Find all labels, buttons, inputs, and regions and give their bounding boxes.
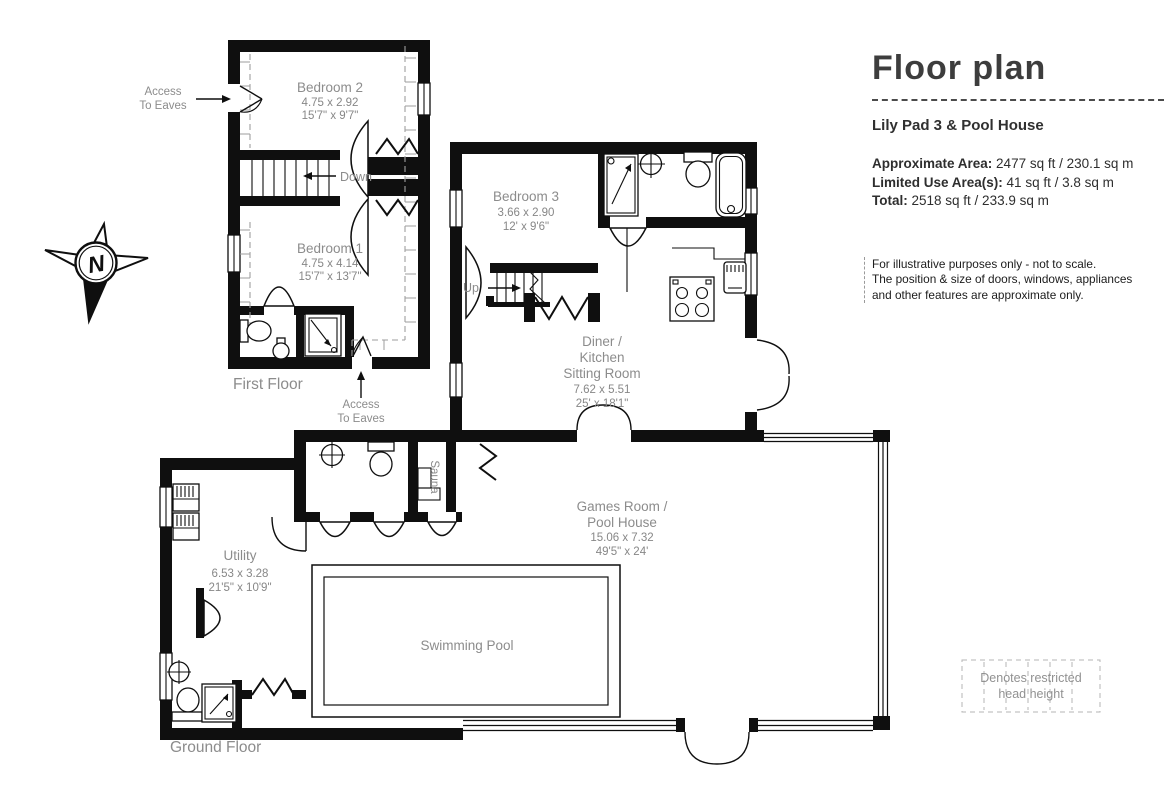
first-floor-plan: Down Access To Eaves Access To Eaves Bed…: [139, 40, 430, 425]
bedroom-1-label: Bedroom 1 4.75 x 4.14 15'7" x 13'7": [297, 241, 363, 283]
svg-text:4.75 x 2.92: 4.75 x 2.92: [302, 97, 359, 109]
total-area-row: Total: 2518 sq ft / 233.9 sq m: [872, 192, 1164, 211]
bathroom-fixtures: [604, 151, 746, 217]
approximate-area-value: 2477 sq ft / 230.1 sq m: [996, 156, 1133, 171]
first-floor-stairs: [252, 160, 329, 196]
svg-text:4.75 x 4.14: 4.75 x 4.14: [302, 258, 360, 270]
page-title: Floor plan: [872, 50, 1164, 86]
limited-use-area-value: 41 sq ft / 3.8 sq m: [1007, 175, 1114, 190]
shower-room-fixtures: [167, 660, 236, 722]
bedroom-2-label: Bedroom 2 4.75 x 2.92 15'7" x 9'7": [297, 80, 363, 122]
sink-icon: [319, 442, 345, 468]
swimming-pool-label: Swimming Pool: [420, 638, 513, 653]
svg-text:Games Room /: Games Room /: [577, 499, 668, 514]
svg-text:15'7" x 13'7": 15'7" x 13'7": [298, 271, 361, 283]
svg-text:Kitchen: Kitchen: [579, 350, 624, 365]
svg-text:15.06 x 7.32: 15.06 x 7.32: [590, 532, 653, 544]
svg-text:Bedroom 1: Bedroom 1: [297, 241, 363, 256]
limited-use-area-label: Limited Use Area(s):: [872, 175, 1003, 190]
utility-appliances: [173, 484, 199, 540]
bathtub-icon: [716, 153, 746, 217]
svg-text:To Eaves: To Eaves: [337, 413, 385, 425]
disclaimer-line-3: and other features are approximate only.: [872, 288, 1164, 304]
area-summary: Approximate Area: 2477 sq ft / 230.1 sq …: [872, 155, 1164, 211]
svg-text:Diner /: Diner /: [582, 334, 622, 349]
svg-text:Sitting Room: Sitting Room: [563, 366, 640, 381]
svg-text:12' x 9'6": 12' x 9'6": [503, 221, 549, 233]
utility-label: Utility 6.53 x 3.28 21'5" x 10'9": [208, 548, 271, 594]
dryer-icon: [173, 513, 199, 540]
property-name: Lily Pad 3 & Pool House: [872, 117, 1164, 134]
floor-plan-page: N: [0, 0, 1165, 787]
hob-icon: [670, 277, 714, 321]
disclaimer-line-1: For illustrative purposes only - not to …: [872, 257, 1164, 273]
access-to-eaves-left: Access To Eaves: [139, 86, 231, 112]
disclaimer-line-2: The position & size of doors, windows, a…: [872, 272, 1164, 288]
kitchen-fixtures: [627, 228, 746, 321]
fridge-icon: [724, 262, 746, 293]
sink-icon: [273, 338, 289, 359]
ground-floor-label: Ground Floor: [170, 739, 261, 756]
svg-text:49'5" x 24': 49'5" x 24': [596, 546, 649, 558]
dashed-divider: [872, 99, 1164, 101]
washer-icon: [173, 484, 199, 511]
info-panel: Floor plan Lily Pad 3 & Pool House Appro…: [872, 50, 1164, 303]
bedroom-3-label: Bedroom 3 3.66 x 2.90 12' x 9'6": [493, 189, 559, 233]
disclaimer: For illustrative purposes only - not to …: [864, 257, 1164, 304]
svg-text:Utility: Utility: [224, 548, 257, 563]
diner-kitchen-label: Diner / Kitchen Sitting Room 7.62 x 5.51…: [563, 334, 640, 410]
wc-fixtures: [319, 442, 394, 476]
down-label: Down: [340, 170, 372, 184]
limited-use-area-row: Limited Use Area(s): 41 sq ft / 3.8 sq m: [872, 174, 1164, 193]
legend-line-1: Denotes restricted: [980, 671, 1081, 685]
total-area-label: Total:: [872, 193, 908, 208]
ensuite-fixtures: [240, 314, 341, 359]
svg-text:Bedroom 3: Bedroom 3: [493, 189, 559, 204]
toilet-icon: [240, 320, 271, 342]
toilet-icon: [172, 688, 202, 721]
up-label: Up: [463, 281, 479, 295]
toilet-icon: [684, 152, 712, 187]
toilet-icon: [368, 442, 394, 476]
svg-text:21'5" x 10'9": 21'5" x 10'9": [208, 582, 271, 594]
down-annotation: Down: [303, 170, 372, 184]
games-room-label: Games Room / Pool House 15.06 x 7.32 49'…: [577, 499, 668, 558]
svg-text:3.66 x 2.90: 3.66 x 2.90: [498, 207, 555, 219]
access-to-eaves-bottom: Access To Eaves: [337, 371, 385, 425]
shower-icon: [305, 314, 341, 356]
sauna-label: Sauna: [428, 460, 440, 494]
svg-text:Pool House: Pool House: [587, 515, 657, 530]
legend-line-2: head height: [998, 687, 1064, 701]
total-area-value: 2518 sq ft / 233.9 sq m: [912, 193, 1049, 208]
shower-icon: [202, 684, 236, 722]
svg-text:25' x 18'1": 25' x 18'1": [576, 398, 629, 410]
svg-text:Bedroom 2: Bedroom 2: [297, 80, 363, 95]
svg-text:15'7" x 9'7": 15'7" x 9'7": [302, 110, 359, 122]
sink-icon: [638, 151, 665, 178]
ground-floor-plan: Swimming Pool Up Bedroom 3 3.66 x 2.90 1…: [160, 142, 890, 764]
svg-text:Access: Access: [342, 399, 379, 411]
restricted-head-height-legend: Denotes restricted head height: [962, 660, 1100, 712]
up-annotation: Up: [463, 281, 521, 295]
swimming-pool: Swimming Pool: [312, 565, 620, 717]
approximate-area-row: Approximate Area: 2477 sq ft / 230.1 sq …: [872, 155, 1164, 174]
svg-text:7.62 x 5.51: 7.62 x 5.51: [574, 384, 631, 396]
svg-text:6.53 x 3.28: 6.53 x 3.28: [212, 568, 269, 580]
shower-icon: [604, 154, 638, 216]
compass-icon: N: [45, 224, 148, 321]
svg-text:Access: Access: [144, 86, 181, 98]
svg-text:To Eaves: To Eaves: [139, 100, 187, 112]
first-floor-label: First Floor: [233, 376, 303, 393]
approximate-area-label: Approximate Area:: [872, 156, 992, 171]
